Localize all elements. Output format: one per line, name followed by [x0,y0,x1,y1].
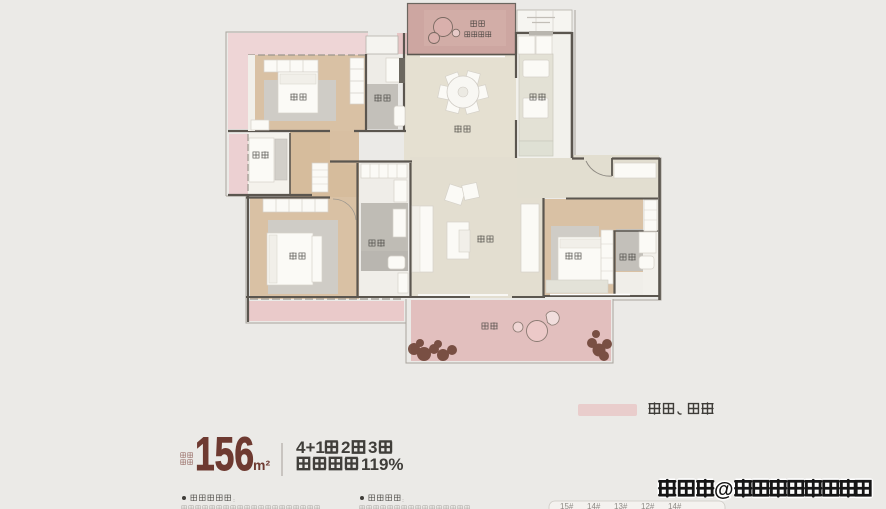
svg-text:15#: 15# [560,502,574,509]
svg-text:14#: 14# [587,502,601,509]
svg-text:14#: 14# [668,502,682,509]
svg-text:2: 2 [341,438,350,457]
svg-text:13#: 13# [614,502,628,509]
svg-text:12#: 12# [641,502,655,509]
svg-text:156: 156 [195,427,254,480]
svg-text:@: @ [714,479,734,501]
svg-text:119%: 119% [361,455,404,474]
svg-text:4+1: 4+1 [296,438,325,457]
svg-text:m²: m² [253,457,270,473]
